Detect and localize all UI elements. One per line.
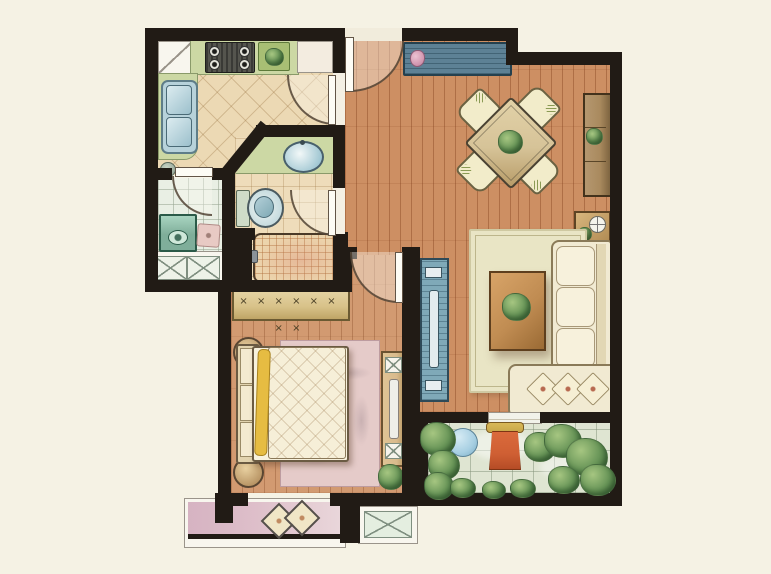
dining-centerpiece-plant xyxy=(498,130,523,154)
bed-quilt xyxy=(268,347,346,459)
cabinet-shelf-line xyxy=(585,161,606,162)
floor-drain xyxy=(196,223,221,248)
stove-burner xyxy=(239,46,250,57)
refrigerator xyxy=(297,41,333,73)
tv-cabinet-drawer xyxy=(425,267,442,278)
shower-tray xyxy=(253,233,341,283)
cabinet-plant xyxy=(586,128,603,145)
wall-segment xyxy=(402,247,420,497)
washer-drum xyxy=(168,230,188,245)
balcony-plant xyxy=(510,479,536,498)
wall-segment xyxy=(212,168,235,180)
stove-burner xyxy=(239,59,250,70)
wall-segment xyxy=(610,52,622,506)
coffee-table-plant xyxy=(502,293,531,321)
basin-faucet xyxy=(300,140,305,145)
laundry-glass-door-leaf xyxy=(175,167,213,177)
balcony-plant xyxy=(580,464,616,496)
wash-basin xyxy=(283,141,324,173)
gas-stove xyxy=(205,42,255,73)
sofa-right-section xyxy=(551,240,612,375)
stove-burner xyxy=(209,59,220,70)
bay-window-outer-sill xyxy=(188,534,340,539)
sofa-cushion xyxy=(556,246,595,286)
wall-segment xyxy=(540,412,610,423)
balcony-plant xyxy=(548,466,580,494)
bedroom-potted-plant xyxy=(378,464,404,490)
wall-segment xyxy=(218,280,352,292)
wall-segment xyxy=(145,28,158,292)
wall-segment xyxy=(340,493,360,543)
bedroom-door-leaf xyxy=(395,252,403,303)
prep-plate xyxy=(258,42,290,71)
wardrobe-hangers: × × × × × × × × xyxy=(234,288,344,315)
tall-cabinet xyxy=(583,93,612,197)
vegetables xyxy=(265,48,284,66)
toilet-seat xyxy=(254,196,274,218)
stove-burner xyxy=(209,46,220,57)
balcony-chair-seat xyxy=(489,431,521,470)
double-sink xyxy=(161,80,198,154)
bedroom-television xyxy=(389,379,399,439)
dresser-speaker xyxy=(385,443,402,459)
sofa-backrest xyxy=(596,244,606,367)
entry-door-leaf xyxy=(345,37,354,92)
balcony-plant xyxy=(450,478,476,498)
wall-segment xyxy=(418,412,488,423)
tv-cabinet xyxy=(420,258,449,402)
bathroom-door-leaf xyxy=(328,190,336,236)
ac-platform-grille xyxy=(364,511,412,538)
washing-machine xyxy=(159,214,197,252)
toilet-bowl xyxy=(247,188,284,228)
dresser-speaker xyxy=(385,357,402,373)
television xyxy=(429,290,439,368)
wall-segment xyxy=(330,493,622,506)
wall-segment xyxy=(402,28,518,41)
flower-pot xyxy=(410,50,425,67)
balcony-plant xyxy=(482,481,506,499)
laundry-bay-window-pane xyxy=(154,256,187,280)
tv-cabinet-drawer xyxy=(425,380,442,391)
kitchen-door-leaf xyxy=(328,75,336,125)
chair-back-stripes xyxy=(459,163,473,177)
kitchen-corner-cabinet xyxy=(158,41,193,74)
wall-segment xyxy=(506,52,622,65)
laundry-bay-window-pane xyxy=(187,256,220,280)
wall-segment xyxy=(333,28,345,75)
shoe-sideboard xyxy=(403,42,512,76)
chair-back-stripes xyxy=(530,178,544,192)
chair-back-stripes xyxy=(544,102,558,116)
sofa-cushion xyxy=(556,328,595,367)
wall-segment xyxy=(145,28,345,41)
floor-plan: × × × × × × × × xyxy=(0,0,771,574)
sink-basin xyxy=(166,85,192,115)
side-table-dish xyxy=(589,216,606,233)
sofa-cushion xyxy=(556,287,595,327)
wall-segment xyxy=(145,168,172,180)
wall-segment xyxy=(218,287,231,506)
chair-back-stripes xyxy=(473,91,487,105)
sink-basin xyxy=(166,117,192,147)
